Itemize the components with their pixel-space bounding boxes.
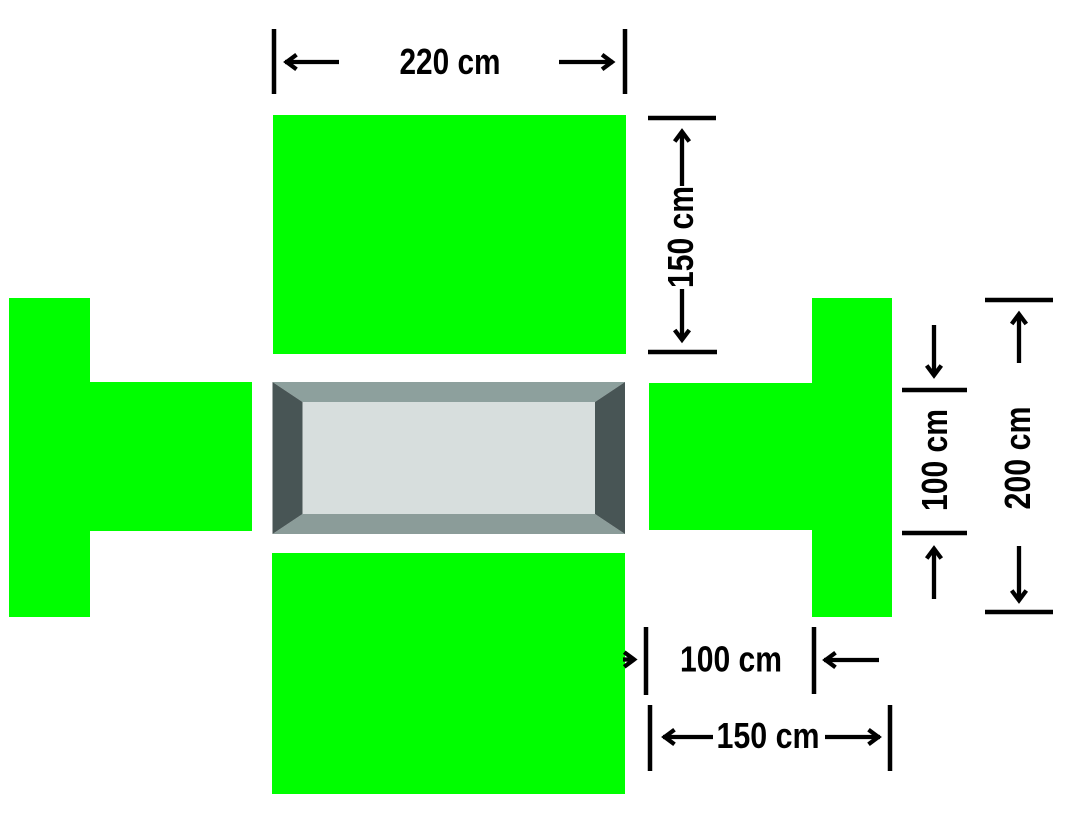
svg-text:150 cm: 150 cm: [660, 186, 701, 288]
svg-text:220 cm: 220 cm: [400, 41, 501, 82]
svg-text:200 cm: 200 cm: [997, 407, 1038, 510]
svg-text:150 cm: 150 cm: [717, 715, 820, 756]
svg-text:100 cm: 100 cm: [680, 639, 782, 680]
svg-text:100 cm: 100 cm: [914, 409, 955, 511]
